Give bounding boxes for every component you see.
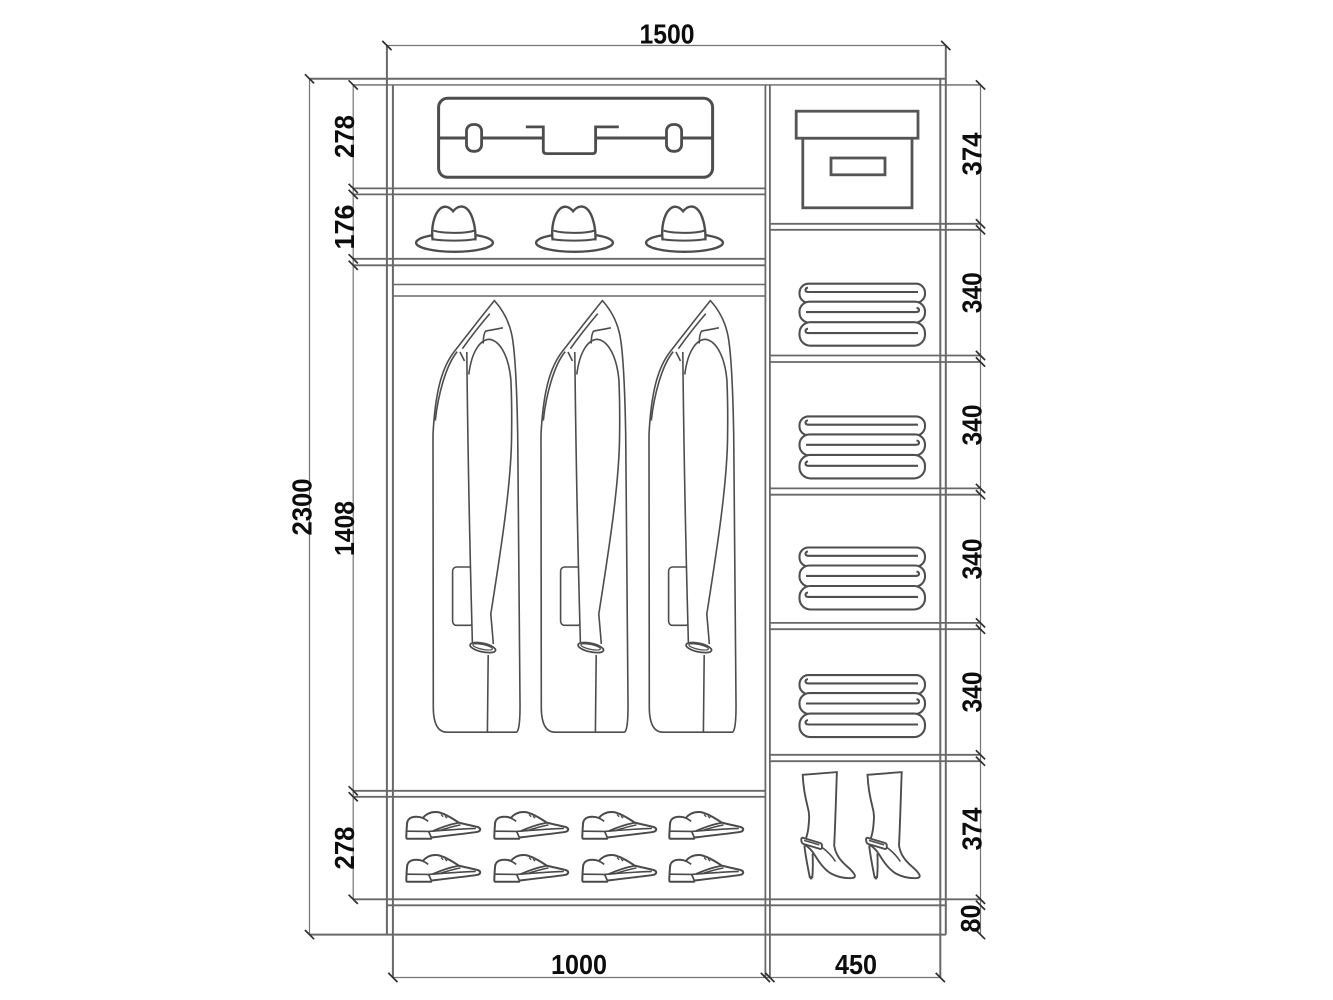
svg-text:1408: 1408 bbox=[329, 501, 360, 556]
svg-text:340: 340 bbox=[957, 672, 988, 713]
svg-text:80: 80 bbox=[955, 905, 986, 933]
svg-text:374: 374 bbox=[957, 132, 988, 175]
svg-text:2300: 2300 bbox=[287, 479, 318, 536]
svg-text:278: 278 bbox=[329, 827, 360, 870]
svg-text:340: 340 bbox=[957, 272, 988, 313]
svg-text:278: 278 bbox=[329, 115, 360, 158]
svg-text:1000: 1000 bbox=[551, 949, 607, 980]
svg-text:1500: 1500 bbox=[640, 19, 695, 50]
svg-text:374: 374 bbox=[957, 807, 988, 850]
svg-text:340: 340 bbox=[957, 539, 988, 580]
svg-text:340: 340 bbox=[957, 405, 988, 446]
svg-text:176: 176 bbox=[329, 205, 360, 250]
svg-text:450: 450 bbox=[835, 949, 877, 980]
